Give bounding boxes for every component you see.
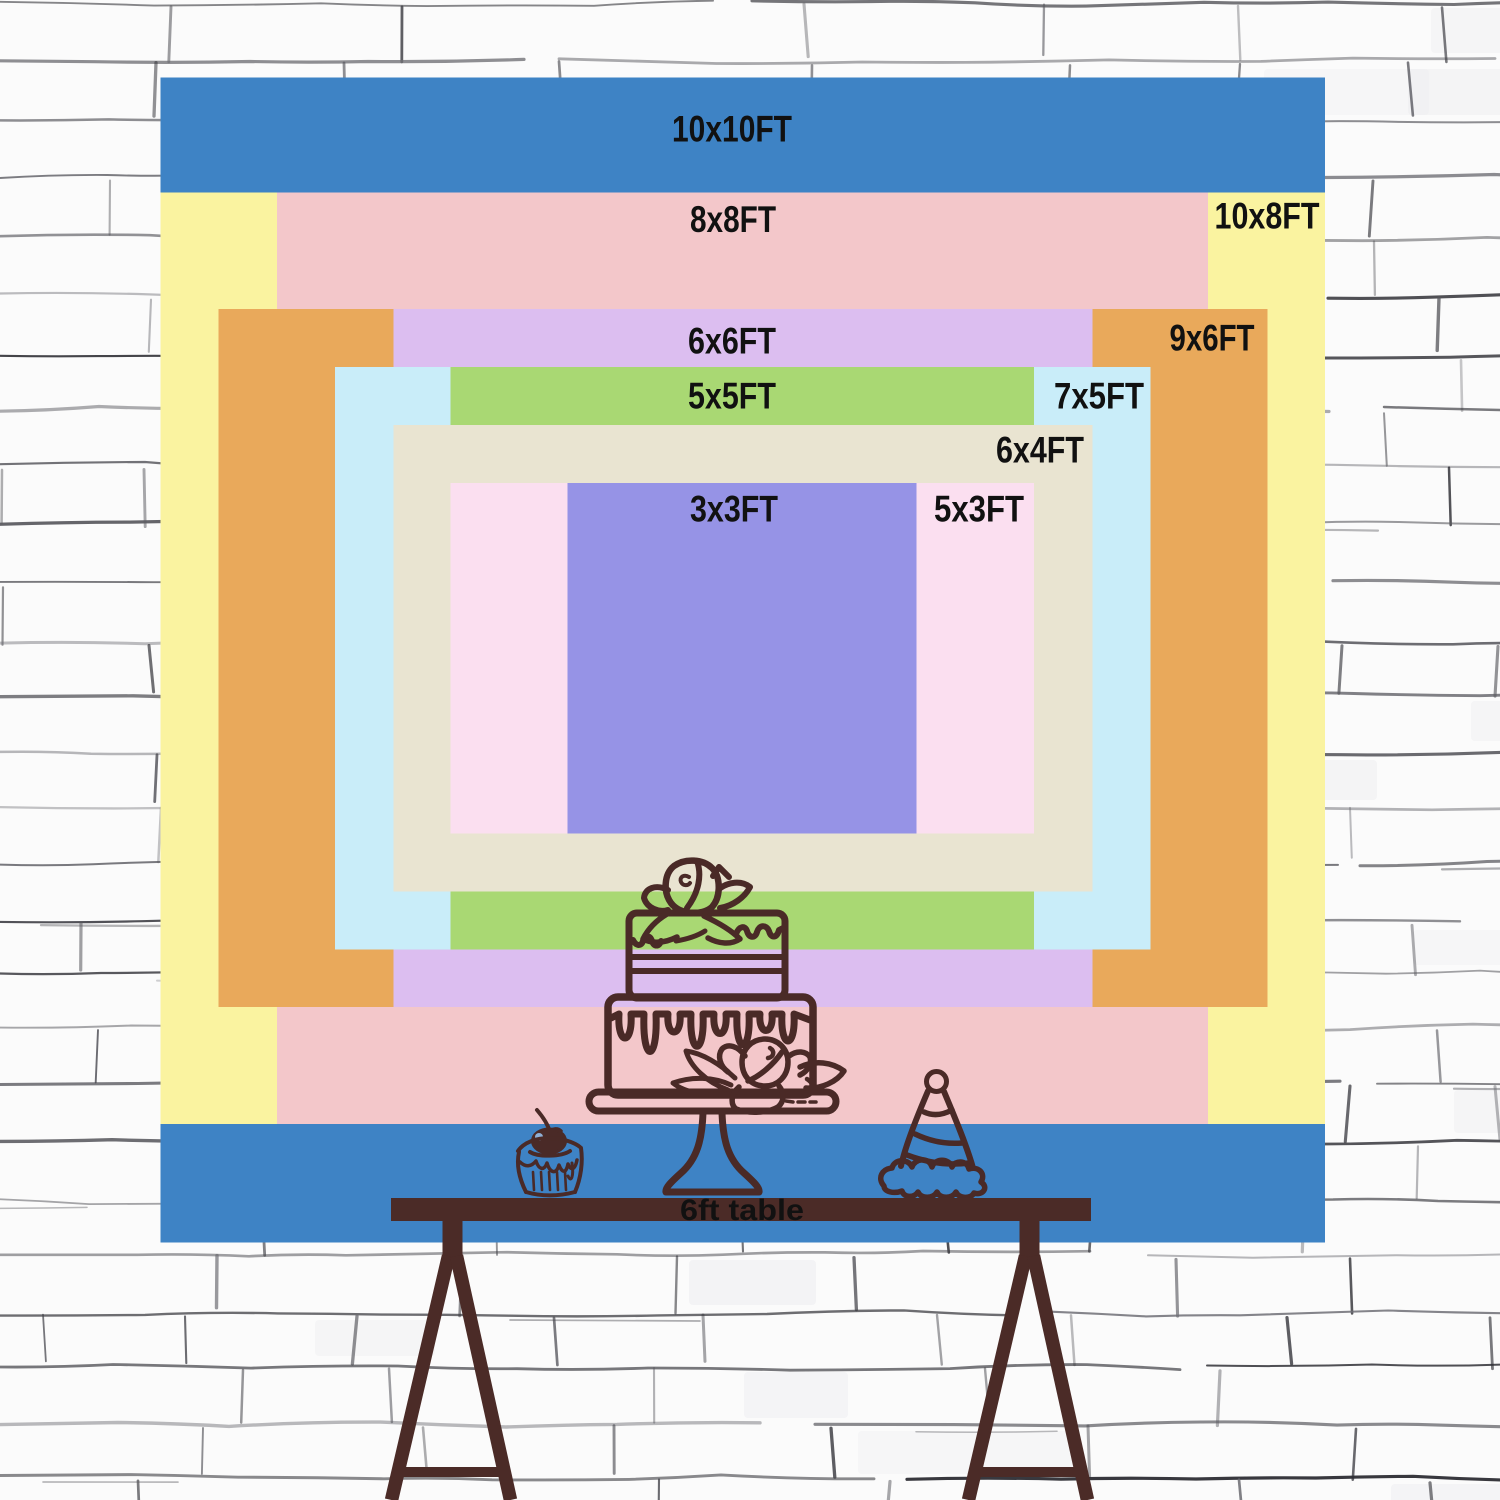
svg-text:7x5FT: 7x5FT [1054, 376, 1144, 417]
svg-text:9x6FT: 9x6FT [1170, 318, 1255, 359]
svg-text:8x8FT: 8x8FT [690, 199, 776, 240]
svg-text:6x4FT: 6x4FT [996, 430, 1084, 471]
svg-text:5x3FT: 5x3FT [934, 489, 1024, 530]
svg-text:5x5FT: 5x5FT [688, 376, 776, 417]
svg-text:6ft table: 6ft table [680, 1194, 804, 1227]
svg-text:10x8FT: 10x8FT [1215, 196, 1320, 237]
svg-text:10x10FT: 10x10FT [672, 109, 792, 150]
svg-text:6x6FT: 6x6FT [688, 321, 776, 362]
svg-text:3x3FT: 3x3FT [690, 489, 778, 530]
